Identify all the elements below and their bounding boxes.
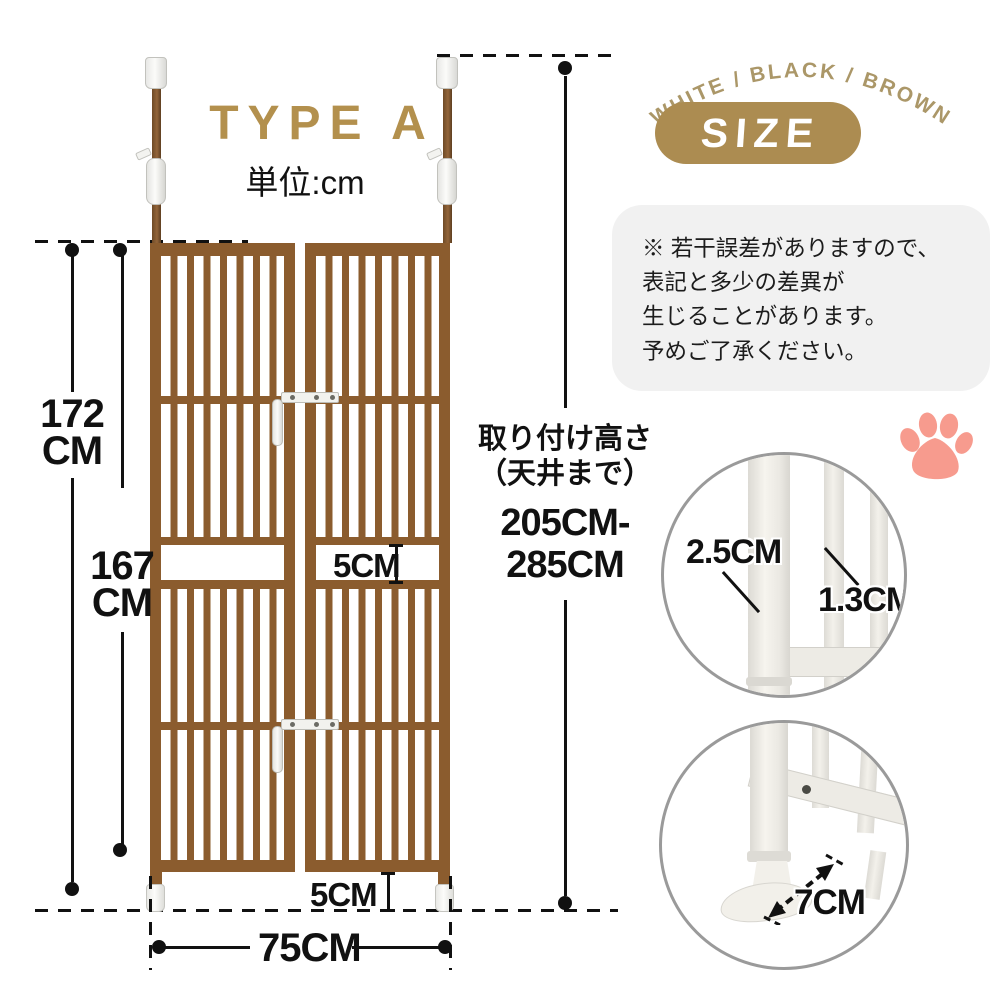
unit-label: 単位:cm	[200, 156, 410, 204]
thick-pole-photo	[748, 452, 790, 698]
size-badge: SIZE	[655, 102, 861, 164]
rod-adjuster	[437, 158, 457, 205]
paw-icon	[893, 412, 975, 484]
product-size-infographic: TYPE A 単位:cm	[0, 0, 1000, 1000]
ceiling-reference-line	[437, 54, 618, 57]
base-depth-label: 7CM	[794, 883, 865, 923]
install-height-label: 取り付け高さ （天井まで） 205CM- 285CM	[455, 422, 675, 586]
pole-diameter-label: 2.5CM	[686, 533, 781, 572]
total-height-label: 172 CM	[32, 396, 112, 470]
bar-diameter-label: 1.3CM	[818, 581, 907, 620]
detail-circle-diameters: 2.5CM 1.3CM	[661, 452, 907, 698]
page-title: TYPE A	[172, 96, 472, 151]
width-label: 75CM	[258, 926, 361, 971]
gate-panel-left	[150, 243, 295, 872]
foot-pole-photo	[750, 720, 788, 856]
panel-height-label: 167 CM	[82, 548, 162, 622]
ceiling-pad	[436, 57, 458, 89]
disclaimer-note: ※ 若干誤差がありますので、 表記と多少の差異が 生じることがあります。 予めご…	[612, 205, 990, 391]
rod-adjuster	[146, 158, 166, 205]
detail-circle-base: 7CM	[659, 720, 909, 970]
ceiling-pad	[145, 57, 167, 89]
